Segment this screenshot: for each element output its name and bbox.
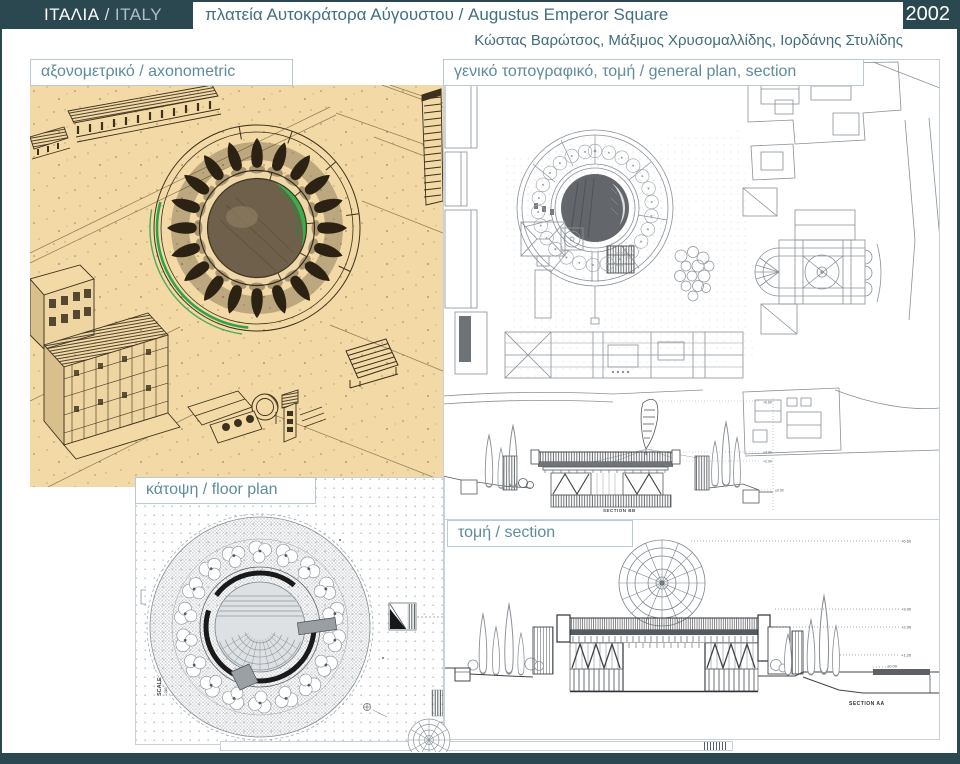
sc-elevation-0: +6.60: [901, 539, 912, 544]
presentation-page: ΙΤΑΛΙΑ/ITALY πλατεία Αυτοκράτορα Αύγουστ…: [0, 0, 960, 764]
section-aa-caption: SECTION AA: [849, 701, 885, 707]
section-wheel: [619, 540, 705, 626]
gp-elevation-0: +6.60: [763, 401, 772, 405]
country-el: ΙΤΑΛΙΑ: [44, 5, 100, 24]
svg-text:SCALE: SCALE: [157, 677, 163, 696]
axonometric-drawing: [30, 85, 443, 487]
page-left-border: [0, 0, 2, 764]
strip-hatch-block: [704, 742, 726, 750]
section-drawing: +6.60 +3.90 +2.90 +1.20 ±0.00 SECTION AA: [443, 519, 940, 740]
sc-elevation-1: +3.90: [901, 607, 912, 612]
gp-elevation-1: +3.90: [763, 451, 772, 455]
year-label: 2002: [906, 0, 951, 29]
axonometric-label: αξονομετρικό / axonometric: [30, 59, 293, 86]
floor-plan-label: κάτοψη / floor plan: [135, 477, 316, 504]
floor-plan-drawing: SCALE 1:200: [135, 478, 445, 745]
country-label: ΙΤΑΛΙΑ/ITALY: [44, 0, 162, 29]
project-title: πλατεία Αυτοκράτορα Αύγουστου / Augustus…: [193, 2, 903, 28]
country-en: ITALY: [115, 5, 162, 24]
footer-bar: [0, 753, 960, 764]
section-bb-caption: SECTION BB: [603, 508, 636, 513]
sc-elevation-2: +2.90: [901, 625, 912, 630]
sc-elevation-3: +1.20: [901, 653, 912, 658]
sc-elevation-4: ±0.00: [887, 664, 898, 669]
gp-elevation-2: +2.90: [763, 460, 772, 464]
credits-text: Κώστας Βαρώτσος, Μάξιμος Χρυσομαλλίδης, …: [474, 32, 903, 49]
svg-text:1:200: 1:200: [164, 687, 168, 696]
section-label: τομή / section: [447, 520, 633, 547]
bottom-drawing-strip: [220, 741, 733, 751]
general-plan-label: γενικό τοπογραφικό, τομή / general plan,…: [443, 59, 864, 86]
country-separator: /: [100, 5, 115, 24]
header-bar: ΙΤΑΛΙΑ/ITALY πλατεία Αυτοκράτορα Αύγουστ…: [0, 0, 960, 29]
dome-detail: [402, 708, 458, 752]
credits-bar: Κώστας Βαρώτσος, Μάξιμος Χρυσομαλλίδης, …: [0, 29, 960, 57]
gp-elevation-3: ±0.00: [775, 489, 784, 493]
general-plan-drawing: +6.60 +3.90 +2.90 ±0.00 SECTION BB: [443, 60, 940, 520]
project-title-box: πλατεία Αυτοκράτορα Αύγουστου / Augustus…: [193, 2, 903, 29]
